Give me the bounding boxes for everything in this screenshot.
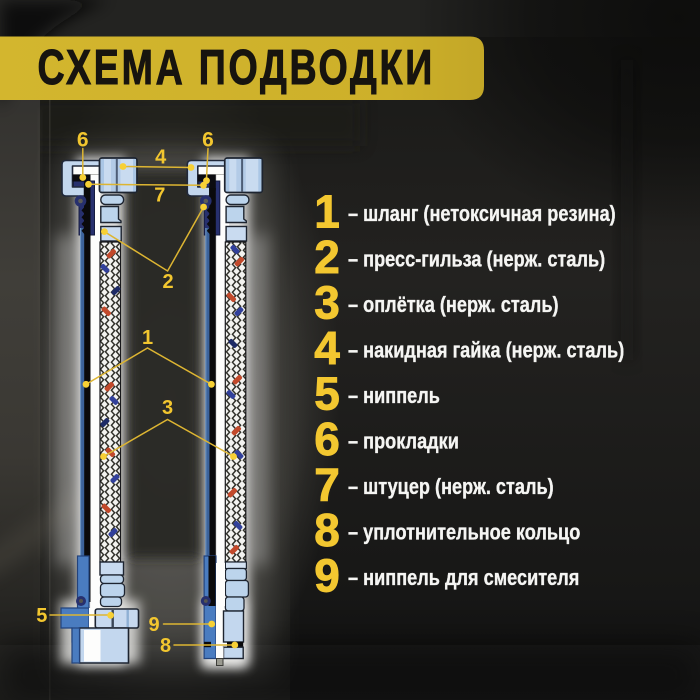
svg-text:СХЕМА ПОДВОДКИ: СХЕМА ПОДВОДКИ <box>38 40 436 95</box>
svg-text:– прокладки: – прокладки <box>348 430 459 454</box>
svg-text:– уплотнительное кольцо: – уплотнительное кольцо <box>348 521 580 545</box>
svg-text:8: 8 <box>160 635 171 657</box>
svg-text:7: 7 <box>154 184 165 206</box>
svg-text:9: 9 <box>148 614 159 636</box>
svg-text:2: 2 <box>314 231 340 283</box>
svg-text:– накидная гайка (нерж. сталь): – накидная гайка (нерж. сталь) <box>348 339 624 363</box>
svg-text:– ниппель: – ниппель <box>348 384 440 408</box>
svg-text:3: 3 <box>162 397 173 419</box>
svg-text:– пресс-гильза (нерж. сталь): – пресс-гильза (нерж. сталь) <box>348 248 605 272</box>
svg-text:4: 4 <box>314 322 340 374</box>
svg-text:3: 3 <box>314 277 340 329</box>
svg-text:– штуцер (нерж. сталь): – штуцер (нерж. сталь) <box>348 475 554 499</box>
svg-text:5: 5 <box>36 605 47 627</box>
svg-text:2: 2 <box>162 271 173 293</box>
svg-text:– ниппель для смесителя: – ниппель для смесителя <box>348 566 579 590</box>
svg-text:4: 4 <box>155 147 167 169</box>
svg-text:5: 5 <box>314 368 340 420</box>
svg-text:7: 7 <box>314 459 340 511</box>
svg-text:1: 1 <box>142 327 153 349</box>
svg-text:– шланг (нетоксичная резина): – шланг (нетоксичная резина) <box>348 202 616 226</box>
svg-text:6: 6 <box>314 413 340 465</box>
svg-text:8: 8 <box>314 504 340 556</box>
svg-text:9: 9 <box>314 550 340 602</box>
svg-text:1: 1 <box>314 186 340 238</box>
svg-text:– оплётка (нерж. сталь): – оплётка (нерж. сталь) <box>348 293 559 317</box>
